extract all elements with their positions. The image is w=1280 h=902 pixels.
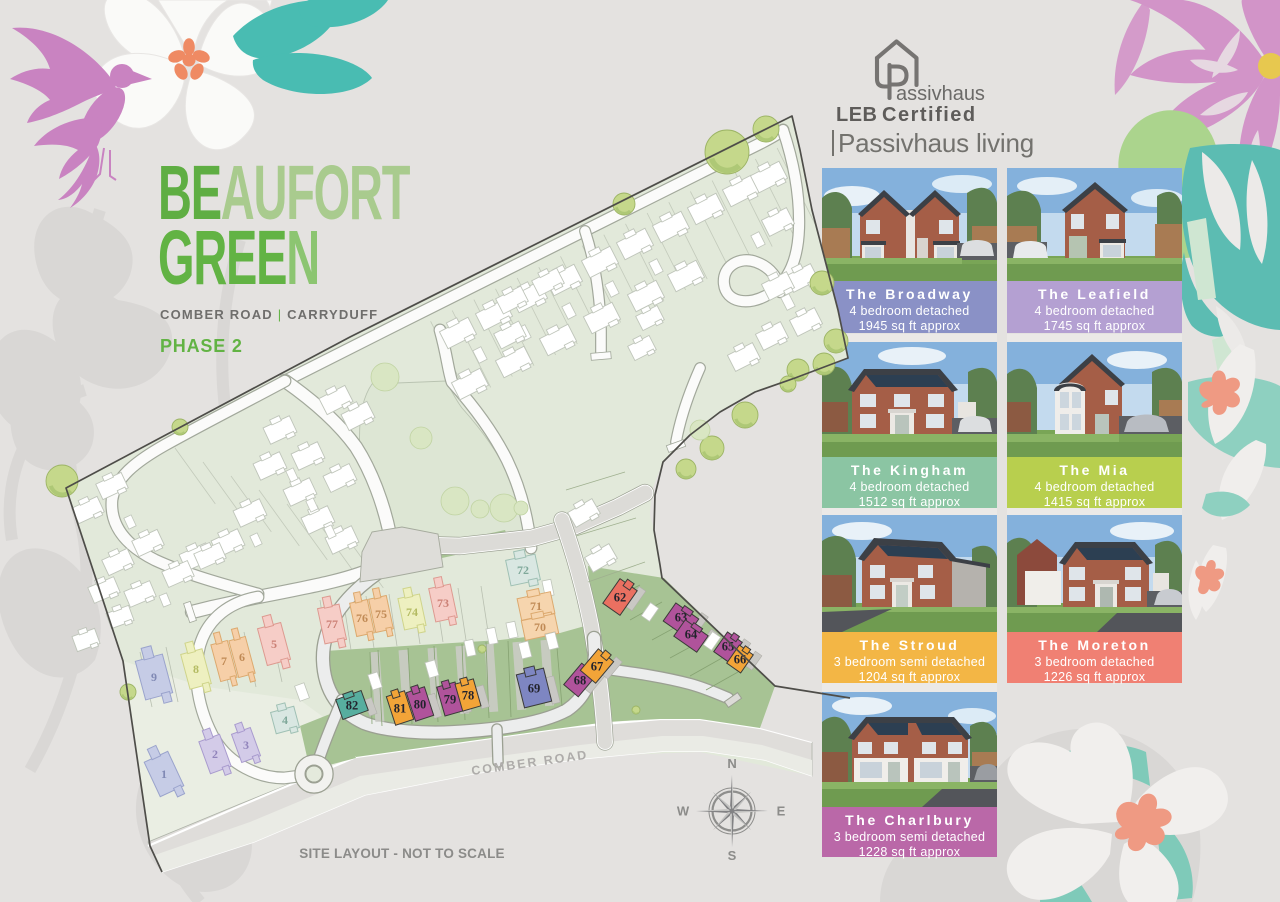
svg-text:80: 80 bbox=[414, 698, 427, 712]
svg-text:74: 74 bbox=[406, 605, 418, 619]
svg-text:8: 8 bbox=[193, 662, 199, 676]
svg-text:6: 6 bbox=[239, 650, 245, 664]
svg-text:70: 70 bbox=[534, 620, 546, 634]
svg-text:assivhaus: assivhaus bbox=[896, 83, 985, 105]
svg-text:71: 71 bbox=[530, 599, 542, 613]
svg-text:7: 7 bbox=[221, 654, 227, 668]
svg-text:3: 3 bbox=[243, 738, 249, 752]
svg-text:78: 78 bbox=[462, 689, 475, 703]
svg-text:81: 81 bbox=[394, 702, 407, 716]
svg-text:82: 82 bbox=[346, 699, 359, 713]
svg-text:75: 75 bbox=[375, 607, 387, 621]
svg-text:N: N bbox=[727, 756, 736, 771]
svg-text:4: 4 bbox=[282, 713, 288, 727]
svg-text:5: 5 bbox=[271, 637, 277, 651]
svg-text:66: 66 bbox=[734, 653, 747, 667]
svg-text:1: 1 bbox=[161, 767, 167, 781]
svg-text:9: 9 bbox=[151, 670, 157, 684]
svg-text:64: 64 bbox=[685, 628, 698, 642]
svg-text:E: E bbox=[777, 804, 786, 819]
svg-text:2: 2 bbox=[212, 747, 218, 761]
svg-text:68: 68 bbox=[574, 674, 587, 688]
svg-text:67: 67 bbox=[591, 660, 604, 674]
svg-text:79: 79 bbox=[444, 693, 457, 707]
svg-text:Certified: Certified bbox=[882, 104, 977, 126]
svg-text:W: W bbox=[677, 804, 690, 819]
svg-text:77: 77 bbox=[326, 617, 338, 631]
svg-text:73: 73 bbox=[437, 596, 449, 610]
svg-text:69: 69 bbox=[528, 682, 541, 696]
svg-text:SITE LAYOUT - NOT TO SCALE: SITE LAYOUT - NOT TO SCALE bbox=[299, 846, 504, 861]
svg-text:72: 72 bbox=[517, 563, 529, 577]
svg-text:76: 76 bbox=[356, 611, 368, 625]
svg-text:S: S bbox=[728, 848, 737, 863]
svg-text:62: 62 bbox=[614, 591, 627, 605]
